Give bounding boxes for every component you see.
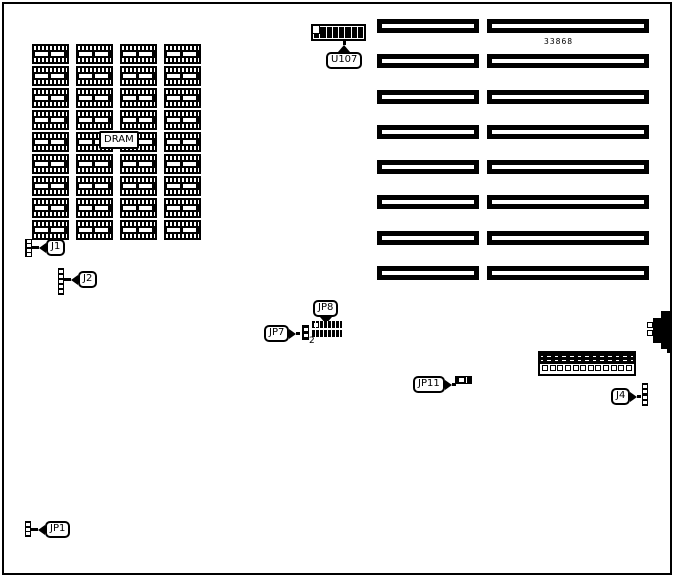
connector-pin	[543, 354, 547, 362]
chip-segment	[352, 27, 357, 38]
dram-chip	[164, 198, 201, 218]
callout-arrow-icon	[38, 525, 45, 535]
connector-socket	[580, 365, 586, 371]
pin-cell	[304, 328, 308, 331]
jp1-label: JP1	[45, 521, 70, 538]
callout-stub	[32, 246, 39, 249]
j1-label: J1	[46, 239, 65, 256]
pin-cell	[26, 532, 30, 535]
dram-chip	[120, 44, 157, 64]
jp7-jumper	[302, 325, 309, 340]
expansion-slot	[377, 160, 479, 174]
expansion-slot	[377, 195, 479, 209]
connector-socket-row	[540, 364, 634, 371]
connector-socket	[626, 365, 632, 371]
chip-segment	[327, 27, 332, 38]
callout-stub	[296, 332, 300, 335]
dram-chip	[32, 154, 69, 174]
u107-callout: U107	[326, 40, 362, 69]
jp11-callout: JP11	[413, 376, 456, 393]
pin-cell	[59, 290, 63, 293]
jp8-pin-header	[312, 321, 342, 337]
dram-chip	[32, 110, 69, 130]
jp11-jumper	[455, 376, 472, 384]
connector-pin	[596, 354, 600, 362]
connector-socket	[565, 365, 571, 371]
connector-notch-icon	[647, 330, 653, 336]
expansion-slot	[487, 90, 649, 104]
dram-chip	[120, 154, 157, 174]
dram-chip	[76, 44, 113, 64]
pin-cell	[59, 270, 63, 273]
dram-chip	[76, 66, 113, 86]
dram-chip	[164, 176, 201, 196]
chip-segment	[333, 27, 338, 38]
j4-label: J4	[611, 388, 630, 405]
connector-notch-icon	[647, 322, 653, 328]
expansion-slot	[487, 19, 649, 33]
dram-chip	[76, 198, 113, 218]
dram-chip	[164, 44, 201, 64]
jp11-label: JP11	[413, 376, 445, 393]
connector-pin	[551, 354, 555, 362]
dram-chip	[164, 220, 201, 240]
dram-chip	[164, 110, 201, 130]
expansion-slot	[487, 266, 649, 280]
dram-chip	[76, 110, 113, 130]
expansion-slot	[377, 19, 479, 33]
j2-label: J2	[78, 271, 97, 288]
chip-segment	[339, 27, 344, 38]
callout-stub	[64, 278, 71, 281]
connector-socket	[603, 365, 609, 371]
pin-cell	[643, 385, 647, 388]
connector-socket	[550, 365, 556, 371]
pin-cell	[304, 334, 308, 337]
connector-pin	[619, 354, 623, 362]
dram-chip	[76, 176, 113, 196]
callout-arrow-icon	[338, 45, 350, 52]
chip-segment	[358, 27, 363, 38]
dram-chip	[32, 66, 69, 86]
pin1-notch-icon	[312, 25, 320, 34]
expansion-slot	[377, 90, 479, 104]
jumper-cell	[459, 378, 464, 382]
pin-cell	[27, 240, 31, 243]
pin-cell	[643, 396, 647, 399]
dram-chip	[120, 88, 157, 108]
connector-socket	[618, 365, 624, 371]
dram-label: DRAM	[99, 131, 139, 149]
pin-cell	[643, 401, 647, 404]
connector-socket	[611, 365, 617, 371]
dram-chip	[164, 154, 201, 174]
pin-cell	[59, 280, 63, 283]
pin-cell	[26, 523, 30, 526]
power-connector	[538, 351, 636, 376]
connector-pin	[604, 354, 608, 362]
dram-chip	[32, 88, 69, 108]
connector-socket	[595, 365, 601, 371]
pin-cell	[27, 253, 31, 256]
connector-socket	[557, 365, 563, 371]
connector-socket	[588, 365, 594, 371]
callout-arrow-icon	[71, 275, 78, 285]
connector-pin	[581, 354, 585, 362]
j2-callout: J2	[64, 271, 97, 288]
expansion-slots-right-column	[487, 19, 649, 280]
motherboard-jumper-diagram: DRAM U107 33868 J1 J2 JP7 JP8 2 JP11	[0, 0, 674, 577]
dram-chip	[164, 88, 201, 108]
callout-stub	[637, 395, 641, 398]
expansion-slot	[377, 54, 479, 68]
j4-callout: J4	[611, 388, 641, 405]
dram-chip	[120, 66, 157, 86]
u107-chip	[311, 24, 366, 41]
jumper-divider	[466, 377, 467, 383]
dram-chip	[32, 132, 69, 152]
connector-pin	[627, 354, 631, 362]
dram-chip	[164, 66, 201, 86]
callout-stub	[31, 528, 38, 531]
callout-arrow-icon	[289, 329, 296, 339]
connector-pin	[612, 354, 616, 362]
expansion-slot	[487, 125, 649, 139]
connector-pin	[566, 354, 570, 362]
keyboard-connector	[647, 311, 672, 353]
connector-pin	[589, 354, 593, 362]
connector-pin	[574, 354, 578, 362]
expansion-slot	[487, 160, 649, 174]
expansion-slot	[377, 125, 479, 139]
expansion-slots-left-column	[377, 19, 479, 280]
dram-chip	[120, 220, 157, 240]
pin-cell	[59, 285, 63, 288]
expansion-slot	[487, 231, 649, 245]
jp1-callout: JP1	[31, 521, 70, 538]
dram-chip	[32, 220, 69, 240]
u107-label: U107	[326, 52, 362, 69]
jp7-label: JP7	[264, 325, 289, 342]
chip-segment	[320, 27, 325, 38]
dram-chip	[120, 176, 157, 196]
dram-chip	[76, 220, 113, 240]
jp8-label: JP8	[313, 300, 338, 317]
board-part-number: 33868	[544, 37, 573, 46]
dram-chip	[32, 44, 69, 64]
j1-connector	[25, 239, 32, 257]
callout-arrow-icon	[445, 380, 452, 390]
callout-arrow-icon	[630, 392, 637, 402]
j1-callout: J1	[32, 239, 65, 256]
dram-chip	[32, 176, 69, 196]
j4-connector	[642, 383, 648, 406]
connector-pin	[558, 354, 562, 362]
expansion-slot	[377, 266, 479, 280]
dram-chip	[120, 198, 157, 218]
dram-chip	[164, 132, 201, 152]
dram-chip	[32, 198, 69, 218]
expansion-slot	[487, 54, 649, 68]
jp7-callout: JP7	[264, 325, 300, 342]
pin-cell	[27, 244, 31, 247]
pin-cell	[643, 390, 647, 393]
pin-cell	[26, 528, 30, 531]
connector-socket	[573, 365, 579, 371]
jp8-pin2-label: 2	[309, 336, 315, 346]
callout-arrow-icon	[39, 243, 46, 253]
connector-pin-row	[540, 353, 634, 364]
dram-chip	[120, 110, 157, 130]
dram-chip	[76, 88, 113, 108]
expansion-slot	[377, 231, 479, 245]
chip-segment	[345, 27, 350, 38]
connector-socket	[542, 365, 548, 371]
dram-chip	[76, 154, 113, 174]
expansion-slot	[487, 195, 649, 209]
pin-cell	[59, 275, 63, 278]
pin-cell	[27, 249, 31, 252]
